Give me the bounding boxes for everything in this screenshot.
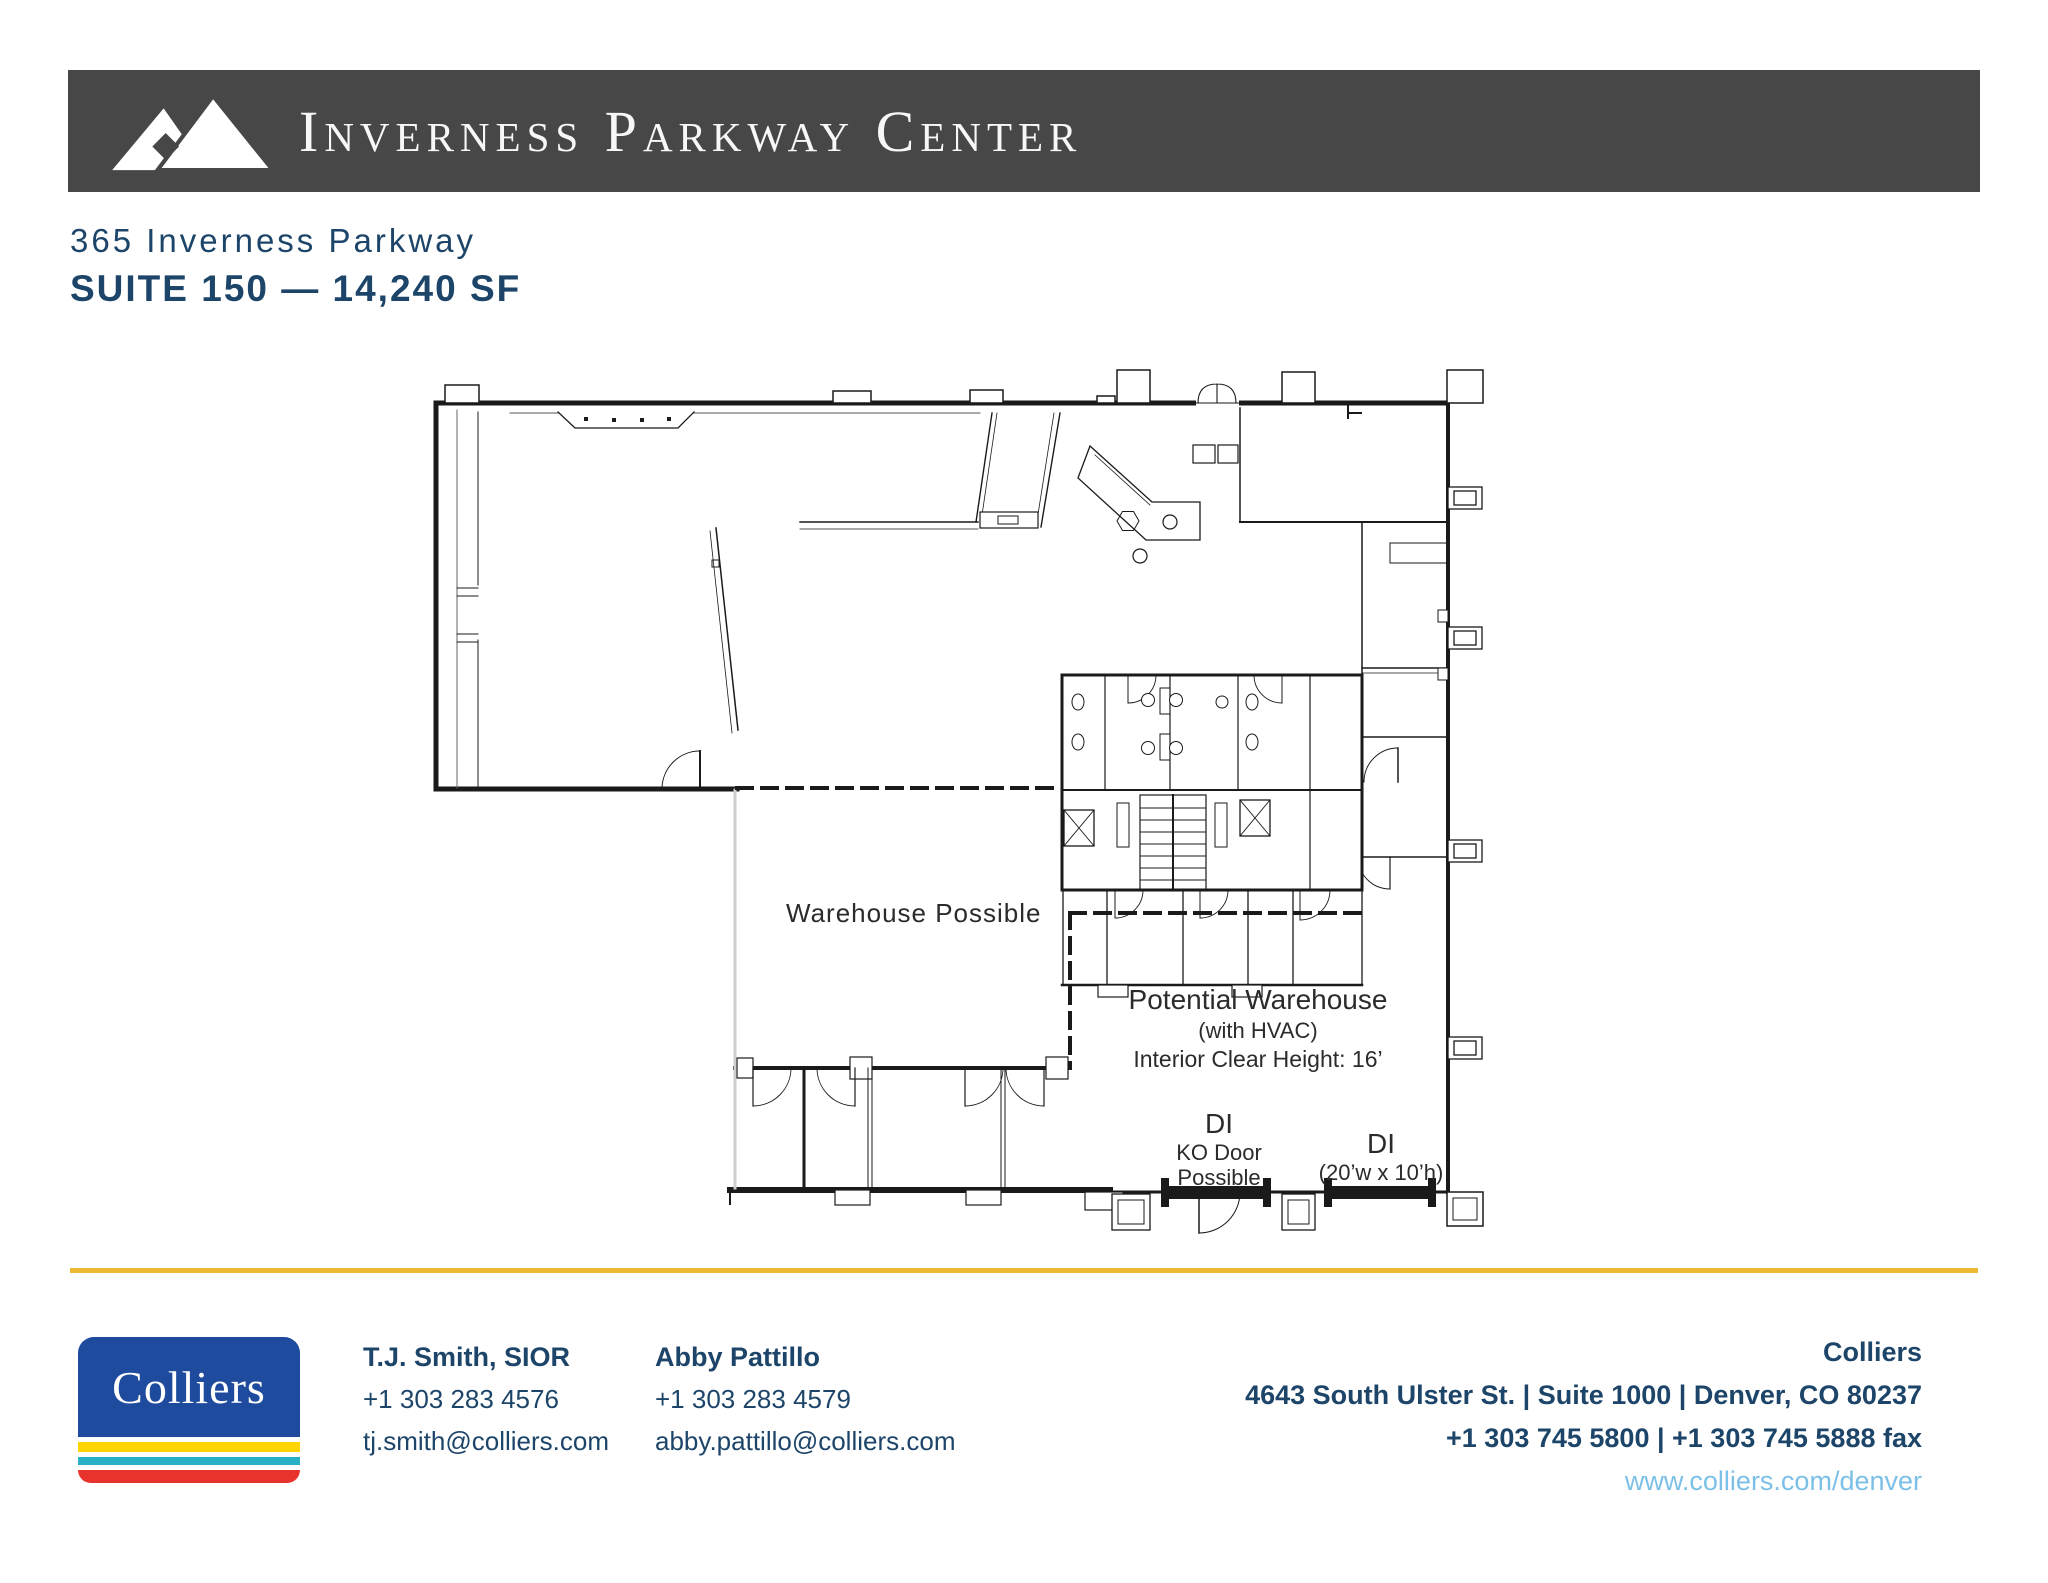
contact-phone: +1 303 283 4579	[655, 1384, 955, 1415]
contact-email[interactable]: tj.smith@colliers.com	[363, 1426, 609, 1457]
colliers-logo-blue-box: Colliers	[78, 1337, 300, 1437]
contact-tj-smith: T.J. Smith, SIOR +1 303 283 4576 tj.smit…	[363, 1342, 609, 1457]
potential-warehouse-title: Potential Warehouse	[1126, 984, 1390, 1016]
header-banner: Inverness Parkway Center	[68, 70, 1980, 192]
restroom-core	[1062, 675, 1362, 890]
hvac-note: (with HVAC)	[1126, 1018, 1390, 1044]
office-info-block: Colliers 4643 South Ulster St. | Suite 1…	[1245, 1337, 1922, 1497]
office-phones: +1 303 745 5800 | +1 303 745 5888 fax	[1245, 1423, 1922, 1454]
core-lower-rooms	[1062, 890, 1362, 997]
contact-name: T.J. Smith, SIOR	[363, 1342, 609, 1373]
left-room	[457, 410, 738, 789]
drive-in-door-1-label: DI KO Door Possible	[1154, 1108, 1284, 1190]
contact-email[interactable]: abby.pattillo@colliers.com	[655, 1426, 955, 1457]
colliers-logo-wordmark: Colliers	[112, 1361, 266, 1414]
logo-stripe-teal	[78, 1457, 300, 1465]
floor-plan: Warehouse Possible Potential Warehouse (…	[420, 268, 1515, 1268]
drive-in-door-2-label: DI (20’w x 10’h)	[1296, 1128, 1466, 1185]
di2-size: (20’w x 10’h)	[1296, 1160, 1466, 1185]
contact-phone: +1 303 283 4576	[363, 1384, 609, 1415]
clear-height-label: Interior Clear Height: 16’	[1126, 1046, 1390, 1073]
floor-plan-drawing	[420, 268, 1515, 1268]
office-website-link[interactable]: www.colliers.com/denver	[1245, 1466, 1922, 1497]
mid-corridor	[800, 413, 1060, 529]
property-address: 365 Inverness Parkway	[70, 222, 521, 260]
warehouse-possible-label: Warehouse Possible	[786, 898, 1042, 929]
reception-desk	[1078, 445, 1238, 563]
potential-warehouse-label: Potential Warehouse (with HVAC)	[1126, 984, 1390, 1044]
office-address: 4643 South Ulster St. | Suite 1000 | Den…	[1245, 1380, 1922, 1411]
di2-label: DI	[1296, 1128, 1466, 1160]
page-title: Inverness Parkway Center	[299, 98, 1082, 165]
flyer-page: Inverness Parkway Center 365 Inverness P…	[0, 0, 2048, 1583]
di1-note-line1: KO Door	[1154, 1140, 1284, 1165]
mountain-logo-icon	[106, 89, 281, 173]
di1-label: DI	[1154, 1108, 1284, 1140]
logo-stripe-red	[78, 1470, 300, 1483]
right-wall-columns	[1438, 487, 1482, 1059]
entry-double-door	[1196, 384, 1239, 408]
office-name: Colliers	[1245, 1337, 1922, 1368]
window-sill	[558, 412, 694, 428]
south-wall	[1085, 1178, 1483, 1233]
colliers-logo: Colliers	[78, 1337, 300, 1483]
office-row	[730, 1057, 1068, 1205]
top-wall-columns	[445, 370, 1483, 418]
di1-note-line2: Possible	[1154, 1165, 1284, 1190]
contact-name: Abby Pattillo	[655, 1342, 955, 1373]
contact-abby-pattillo: Abby Pattillo +1 303 283 4579 abby.patti…	[655, 1342, 955, 1457]
logo-stripe-yellow	[78, 1442, 300, 1452]
gold-divider	[70, 1268, 1978, 1273]
